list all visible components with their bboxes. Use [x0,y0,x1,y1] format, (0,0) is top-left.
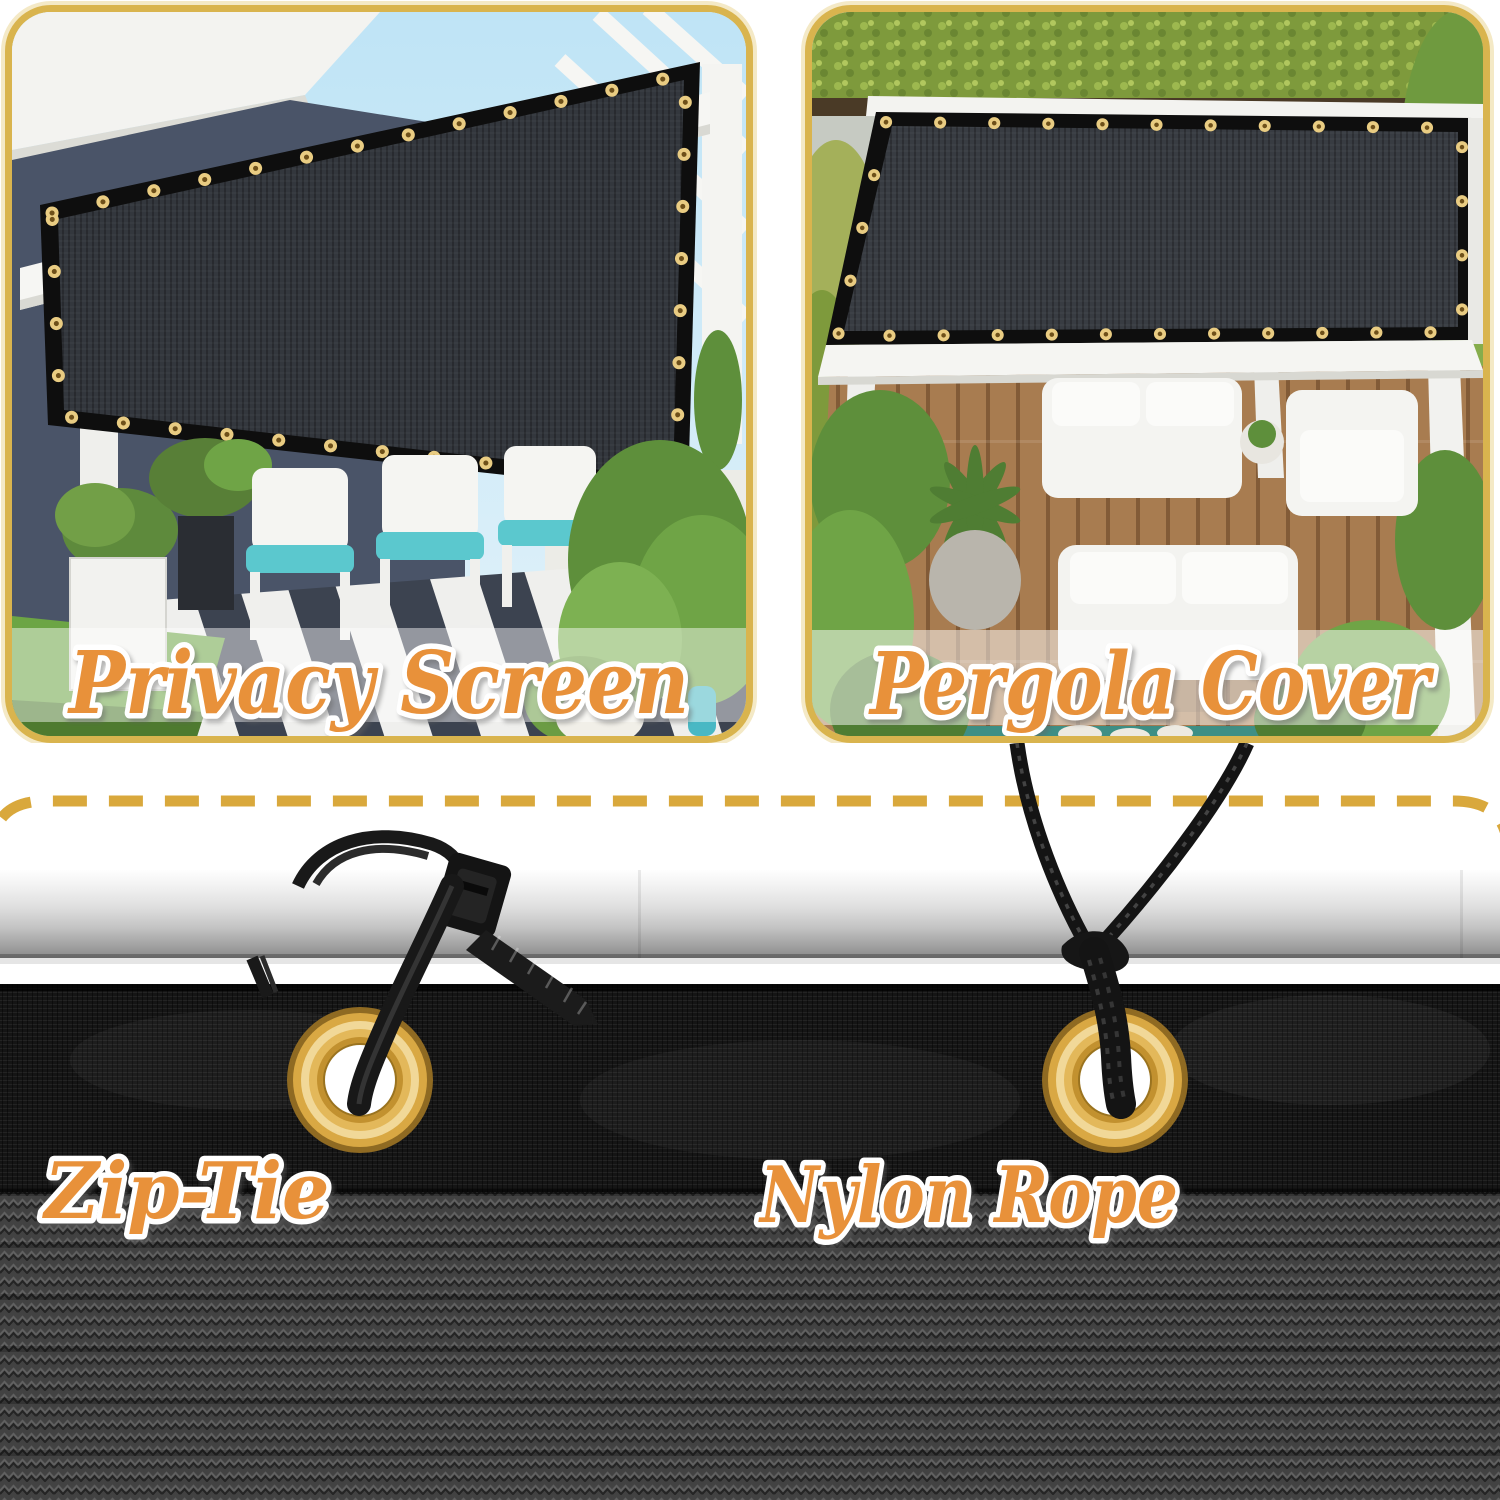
mounting-detail-photo: Zip-Tie Nylon Rope [0,743,1500,1500]
label-nylon-rope: Nylon Rope [758,1150,1178,1241]
panel-pergola-cover: Pergola Cover [805,5,1490,743]
mounting-pole [0,870,1500,964]
panel-privacy-screen: Privacy Screen [5,5,753,743]
caption-pergola-cover: Pergola Cover [868,634,1435,735]
product-image: Privacy Screen [0,0,1500,1500]
pergola-cover-photo: Pergola Cover [812,12,1483,736]
pergola-mesh-cover [826,112,1483,345]
caption-privacy-screen: Privacy Screen [66,633,689,734]
privacy-screen-photo: Privacy Screen [12,12,746,736]
label-zip-tie: Zip-Tie [42,1146,330,1237]
hedge [812,12,1483,110]
